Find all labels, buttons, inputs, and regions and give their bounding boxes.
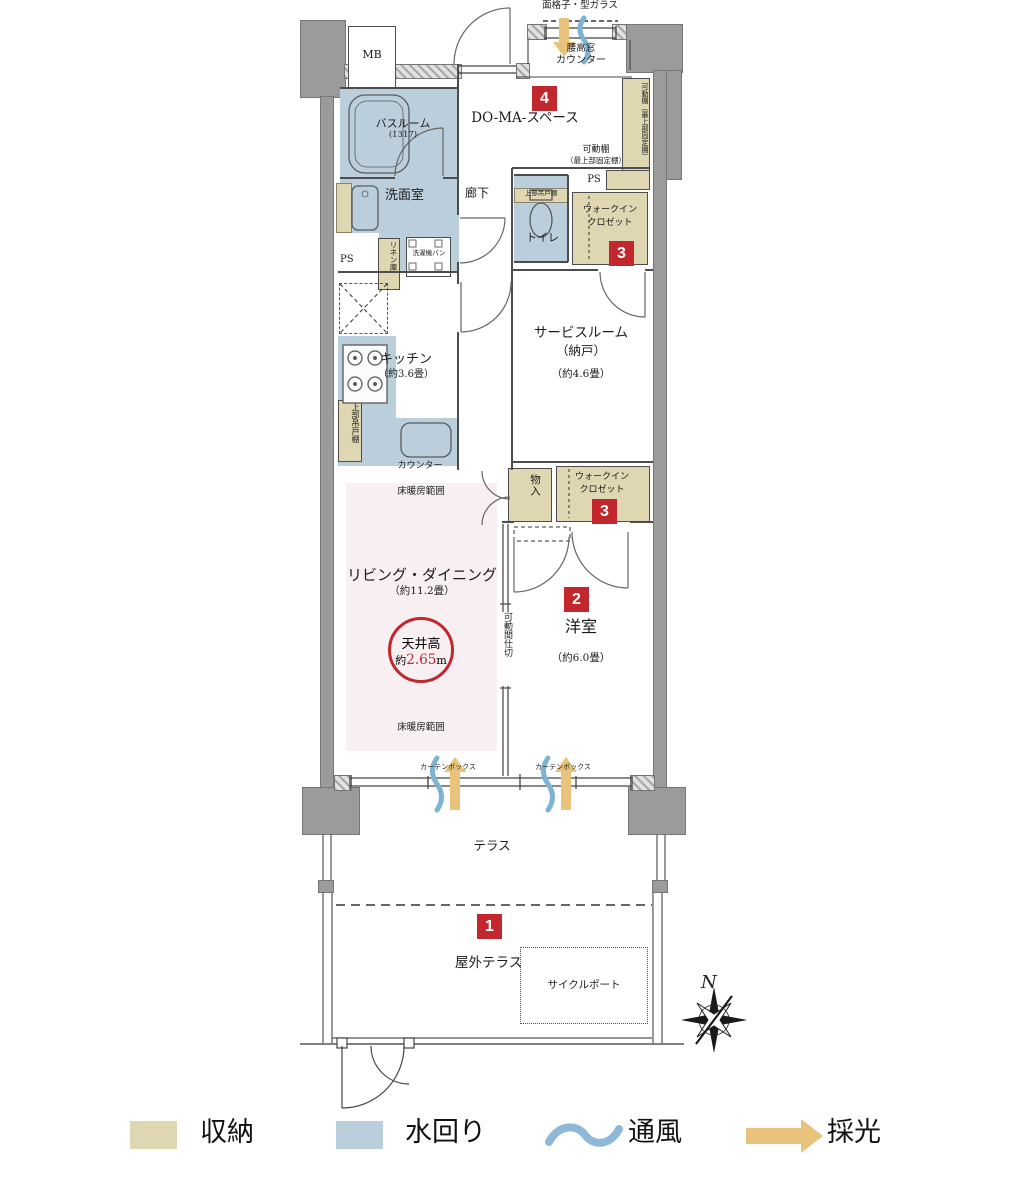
wic-lower-label-line1: ウォークイン	[556, 472, 648, 483]
wall-top-entry-stub	[516, 63, 530, 79]
outdoor-terrace-label: 屋外テラス	[455, 955, 522, 971]
entry-door-arc	[454, 8, 510, 64]
linework	[0, 0, 1011, 1181]
linen-cabinet-label: リネン庫	[381, 241, 398, 289]
room-label-bathroom: バスルーム	[370, 117, 436, 130]
counter-top-label: カウンター	[548, 55, 614, 67]
grille-label: 面格子・型ガラス	[538, 0, 622, 11]
bathroom-size-label: (1317)	[374, 130, 432, 140]
room-label-corridor: 廊下	[465, 186, 489, 200]
wall-left	[320, 96, 334, 790]
wic-upper-label-line2: クロゼット	[574, 218, 646, 229]
room-number-badge-2: 2	[564, 587, 589, 612]
ps-right-label: PS	[580, 174, 608, 186]
movable-shelf-label: 可動棚	[558, 145, 634, 156]
terrace-label: テラス	[470, 838, 514, 853]
wic-lower-label-line2: クロゼット	[556, 485, 648, 496]
room-number-badge-3b: 3	[592, 499, 617, 524]
movable-shelf-cabinet-lower	[606, 170, 650, 190]
kitchen-size-label: （約3.6畳）	[366, 369, 446, 381]
terrace-post-cap-right	[652, 880, 668, 893]
gate	[337, 1038, 414, 1108]
room-label-washroom: 洗面室	[385, 188, 424, 204]
legend-storage-swatch	[130, 1121, 177, 1149]
counter-bottom-label: カウンター	[392, 461, 448, 472]
terrace-post-cap-left	[318, 880, 334, 893]
room-label-kitchen: キッチン	[366, 352, 446, 368]
ps-left-label: PS	[340, 254, 354, 266]
room-number-badge-1: 1	[477, 914, 502, 939]
compass-n-label: N	[701, 972, 717, 994]
wic-upper-label-line1: ウォークイン	[574, 205, 646, 216]
service-sub-label: （納戸）	[512, 343, 650, 358]
legend-ventilation-label: 通風	[628, 1117, 682, 1149]
wall-bay-left-stub	[527, 24, 547, 40]
toilet-upper-cabinet-label: 上部吊戸棚	[516, 190, 566, 198]
wall-bottom-left-stub	[334, 775, 352, 791]
wall-right	[653, 70, 667, 792]
refrigerator-space	[339, 283, 388, 334]
legend-daylight-label: 採光	[827, 1117, 881, 1149]
western-size-label: （約6.0畳）	[541, 652, 621, 665]
legend-water-swatch	[336, 1121, 383, 1149]
washer-pan-label: 洗濯機パン	[407, 250, 451, 258]
ceiling-height-value: 約2.65m	[395, 652, 447, 668]
room-label-doma: DO-MA-スペース	[450, 110, 600, 126]
high-window-label: 腰高窓	[548, 43, 614, 54]
kitchen-upper-cabinet-label: 上部吊戸棚	[341, 403, 360, 461]
mb-label: MB	[348, 48, 396, 61]
western-door-arcs	[514, 532, 628, 592]
cycle-port-label: サイクルポート	[538, 979, 630, 992]
ceiling-height-title: 天井高	[401, 633, 440, 652]
living-size-label: （約11.2畳）	[346, 585, 498, 598]
room-label-toilet: トイレ	[526, 231, 558, 244]
wall-top-left-pillar	[300, 20, 346, 98]
wall-bottom-left-pillar	[302, 787, 360, 835]
kitchen-counter-horizontal	[394, 418, 459, 466]
wall-bottom-right-stub	[630, 775, 655, 791]
floor-heating-top-label: 床暖房範囲	[376, 486, 466, 497]
compass-icon	[682, 988, 746, 1052]
legend-arrow-icon	[746, 1119, 823, 1153]
service-door-arc	[600, 272, 645, 317]
floor-plan: 4 3 3 2 1 MB 面格子・型ガラス 腰高窓 カウンター DO-MA-スペ…	[0, 0, 1011, 1181]
storage-small-label: 物入	[519, 474, 541, 518]
floor-heating-bottom-label: 床暖房範囲	[376, 722, 466, 733]
wall-top-right-pillar	[626, 24, 683, 73]
room-label-service: サービスルーム	[512, 325, 650, 341]
curtain-box-right-label: カーテンボックス	[530, 763, 596, 771]
kitchen-door-arc	[461, 282, 511, 332]
legend-wave-icon	[549, 1127, 619, 1142]
legend-storage-label: 収納	[200, 1117, 254, 1149]
room-number-badge-3a: 3	[609, 241, 634, 266]
ps-left-area	[336, 233, 379, 273]
washroom-door-arc	[460, 218, 505, 263]
room-number-badge-4: 4	[532, 86, 557, 111]
service-size-label: （約4.6畳）	[512, 368, 650, 381]
vanity-cabinet	[336, 183, 352, 233]
wall-bottom-right-pillar	[628, 787, 686, 835]
ceiling-height-circle: 天井高 約2.65m	[388, 617, 454, 683]
movable-partition-label: 可動間仕切	[497, 612, 512, 686]
room-label-living-dining: リビング・ダイニング	[346, 566, 498, 584]
room-label-western: 洋室	[545, 617, 617, 636]
curtain-box-left-label: カーテンボックス	[415, 763, 481, 771]
movable-shelf-note: （最上部固定棚）	[550, 156, 642, 165]
legend-water-label: 水回り	[405, 1117, 486, 1149]
